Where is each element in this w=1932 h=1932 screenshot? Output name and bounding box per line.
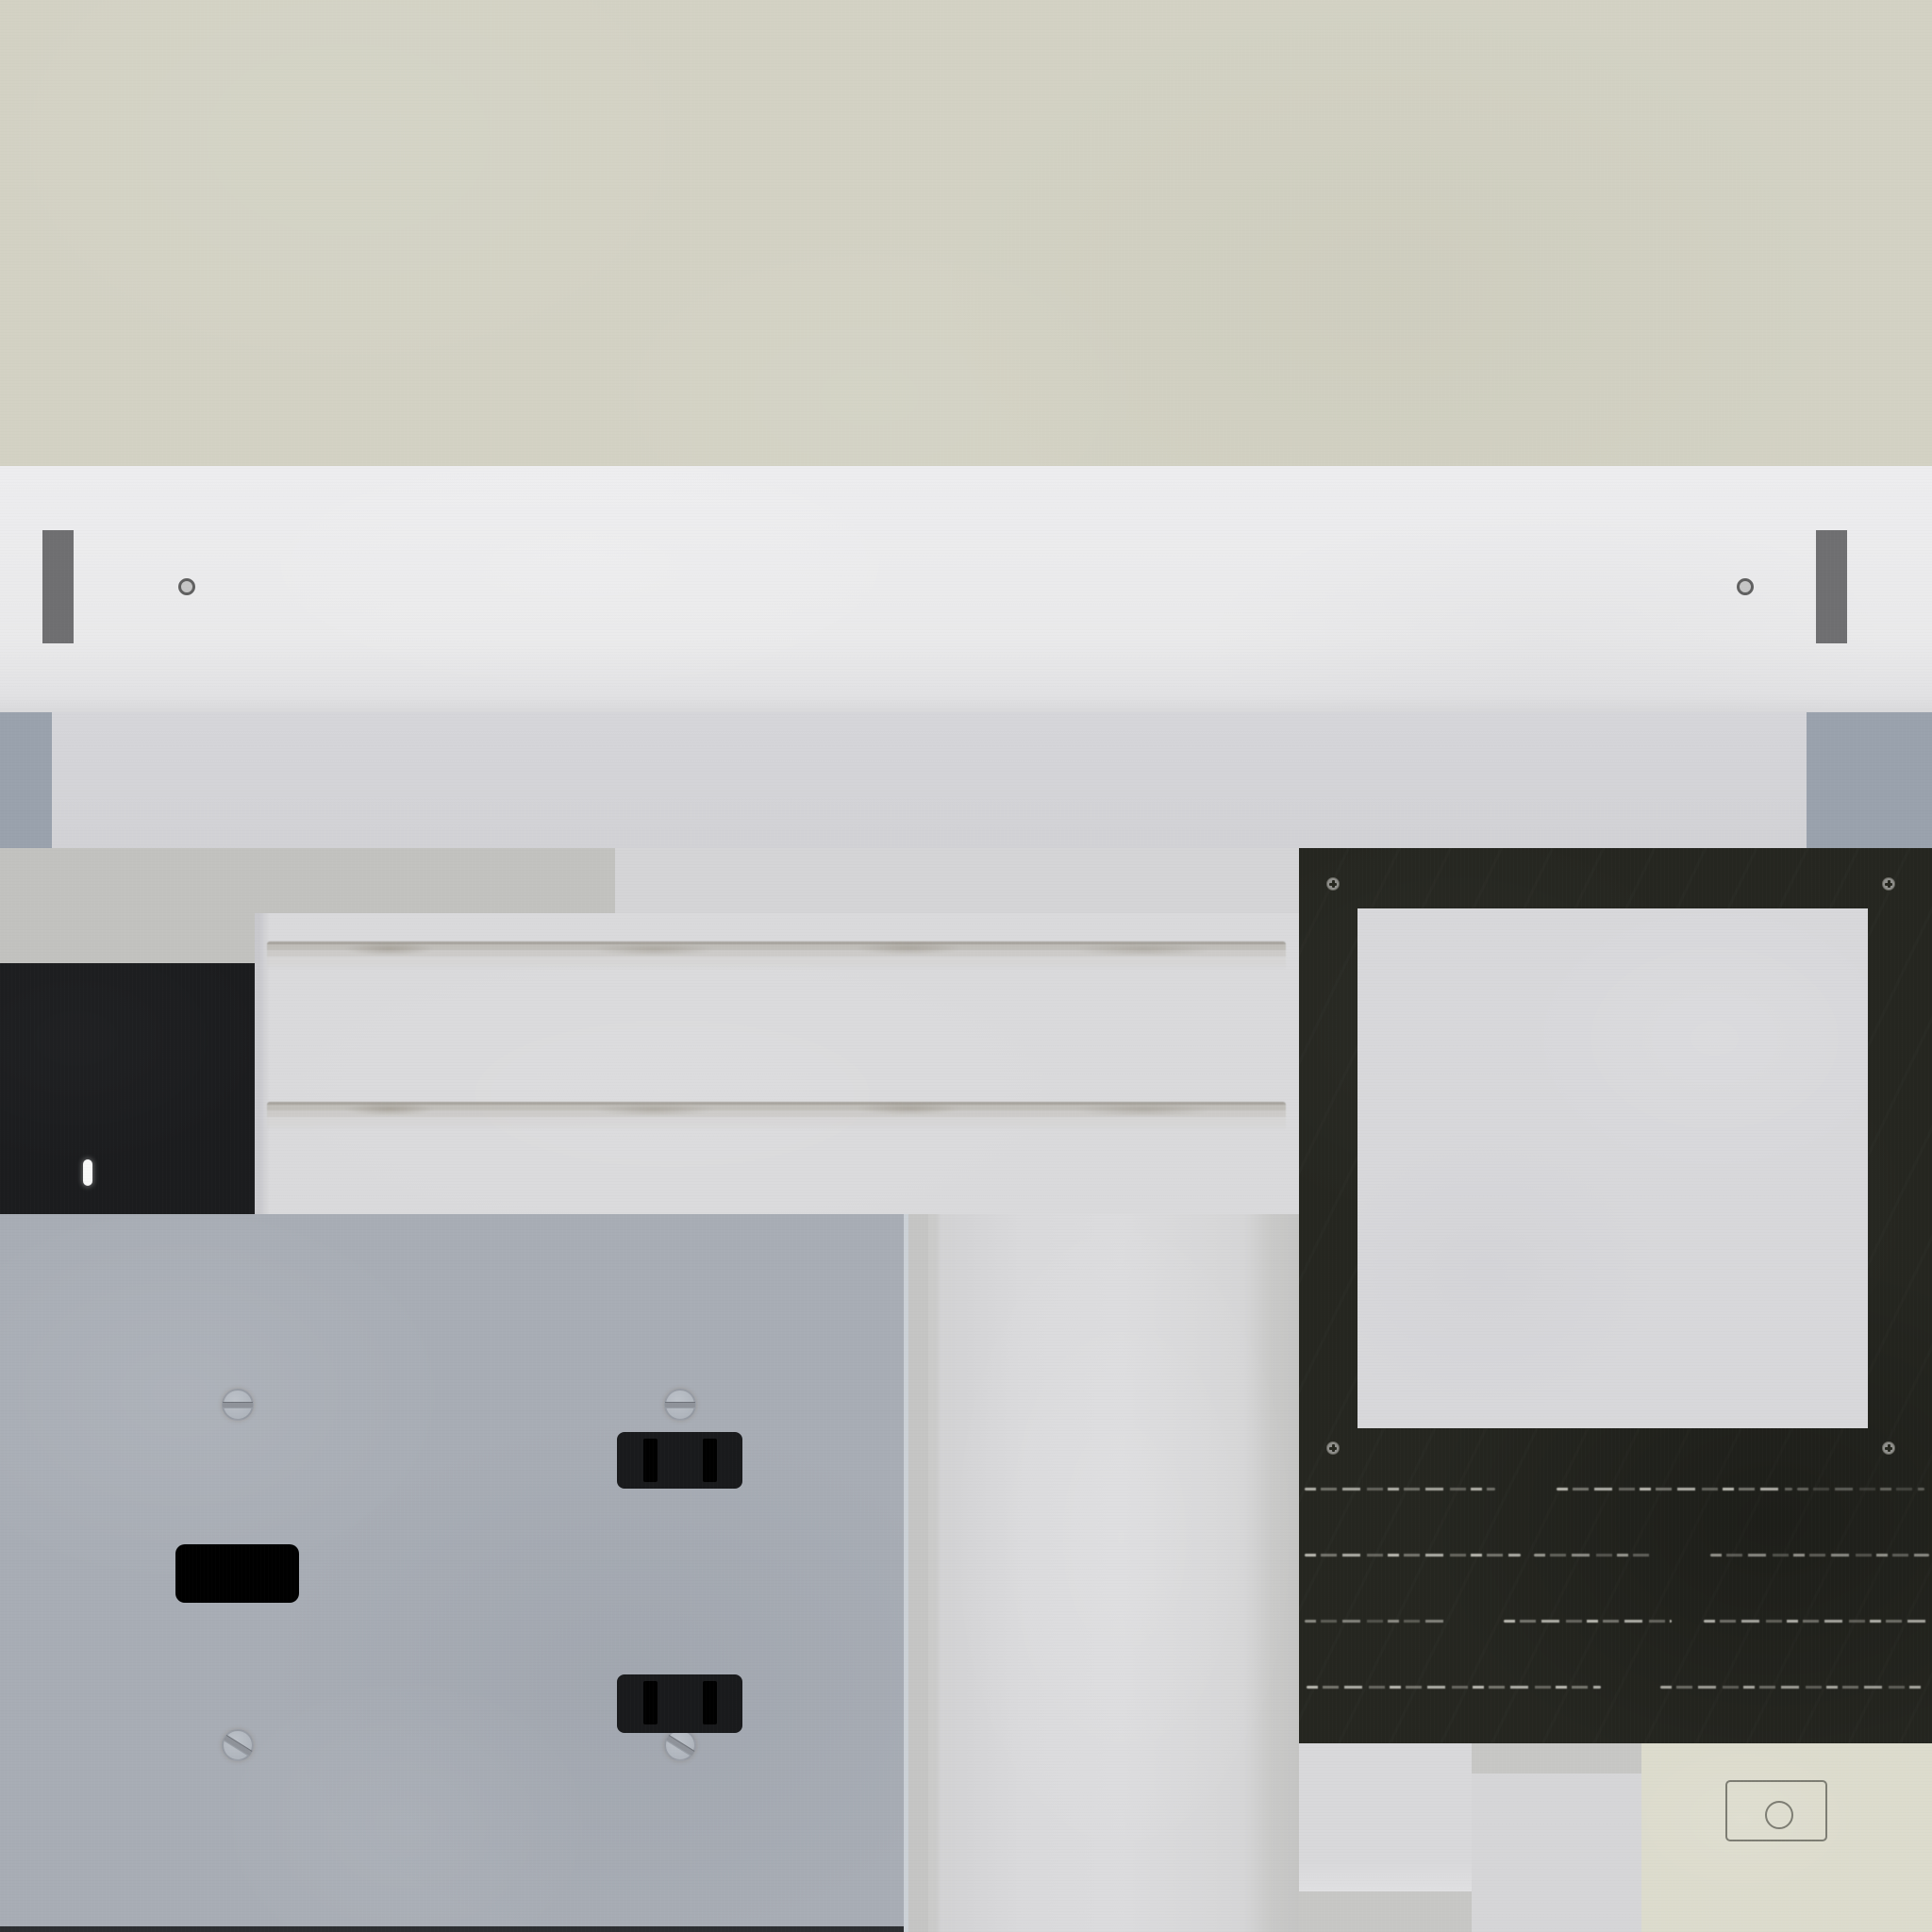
slotted-screw-icon: [222, 1389, 254, 1421]
slotted-screw-icon: [664, 1729, 696, 1761]
chalk-line: [1305, 1488, 1495, 1491]
screw-icon: [1737, 578, 1754, 595]
drawer-groove: [267, 1102, 1286, 1130]
indicator-slot: [83, 1159, 92, 1186]
chalk-line: [1704, 1620, 1930, 1623]
drawer-groove: [267, 941, 1286, 970]
switch-button-circle: [1765, 1801, 1793, 1829]
screw-icon: [178, 578, 195, 595]
lower-wall-patch: [1472, 1743, 1641, 1774]
lower-wall-patch: [1472, 1774, 1641, 1932]
black-display-panel: [0, 963, 255, 1214]
slotted-screw-icon: [222, 1729, 254, 1761]
power-outlet: [617, 1432, 742, 1489]
shelf-band: [0, 712, 1932, 848]
upper-wall: [0, 0, 1932, 466]
chalk-line: [1710, 1554, 1929, 1557]
phillips-screw-icon: [1882, 877, 1895, 891]
chalk-line: [1305, 1554, 1521, 1557]
outlet-slot: [703, 1439, 717, 1482]
phillips-screw-icon: [1326, 877, 1340, 891]
chalk-line: [1504, 1620, 1672, 1623]
shelf-end-block-right: [1807, 712, 1932, 848]
chalkboard: [1299, 848, 1932, 1743]
chalk-line: [1534, 1554, 1651, 1557]
switch-plate-outline: [1725, 1780, 1827, 1841]
bracket-left: [42, 530, 74, 643]
blank-cover-rectangle: [175, 1544, 299, 1603]
lower-beige-wall: [1641, 1743, 1932, 1932]
chalk-line: [1557, 1488, 1792, 1491]
bracket-right: [1816, 530, 1847, 643]
chalk-line: [1307, 1686, 1601, 1689]
chalk-line: [1797, 1488, 1924, 1491]
cornice-ledge: [0, 466, 1932, 712]
slotted-screw-icon: [664, 1389, 696, 1421]
outlet-slot: [643, 1439, 658, 1482]
phillips-screw-icon: [1882, 1441, 1895, 1455]
wall-scene: [0, 0, 1932, 1932]
pillar: [904, 1214, 1299, 1932]
drawer-cabinet: [255, 913, 1299, 1214]
phillips-screw-icon: [1326, 1441, 1340, 1455]
chalk-line: [1660, 1686, 1924, 1689]
mid-light-band: [615, 848, 1299, 917]
pinned-paper-sheet: [1357, 908, 1868, 1428]
lower-wall-patch: [1299, 1891, 1472, 1932]
shelf-end-block-left: [0, 712, 52, 848]
lower-wall-patch: [1299, 1743, 1472, 1891]
outlet-slot: [703, 1681, 717, 1724]
mid-gray-band-extension: [0, 917, 255, 963]
electrical-plate: [0, 1214, 904, 1932]
outlet-slot: [643, 1681, 658, 1724]
plate-bottom-shadow: [0, 1926, 904, 1932]
chalk-line: [1305, 1620, 1445, 1623]
mid-gray-band: [0, 848, 615, 917]
power-outlet: [617, 1674, 742, 1733]
